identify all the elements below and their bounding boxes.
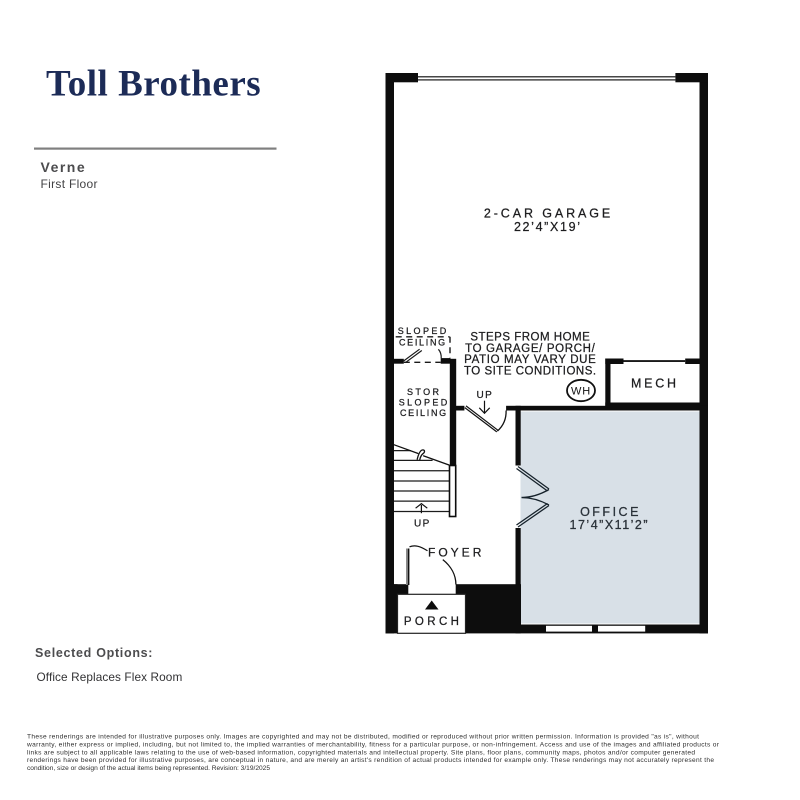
svg-text:SLOPED: SLOPED [398,326,449,336]
svg-text:WH: WH [571,386,591,398]
svg-text:STEPS FROM HOME: STEPS FROM HOME [470,332,590,344]
svg-text:links are subject to all appli: links are subject to all applicable laws… [27,749,695,756]
svg-text:UP: UP [477,390,494,401]
svg-text:Toll Brothers: Toll Brothers [46,64,261,105]
svg-text:TO SITE CONDITIONS.: TO SITE CONDITIONS. [464,365,597,377]
svg-text:condition, size or design of t: condition, size or design of the actual … [27,765,270,772]
svg-text:Verne: Verne [41,159,87,175]
svg-text:SLOPED: SLOPED [399,398,450,408]
svg-text:17’4”X11’2”: 17’4”X11’2” [570,518,650,532]
svg-text:CEILING: CEILING [399,338,447,348]
svg-text:These renderings are intended: These renderings are intended for illust… [27,734,699,741]
svg-text:Selected Options:: Selected Options: [35,646,153,660]
svg-text:warranty, either express or im: warranty, either express or implied, inc… [26,741,720,748]
svg-text:OFFICE: OFFICE [580,505,641,519]
svg-text:UP: UP [414,519,431,530]
svg-text:2-CAR GARAGE: 2-CAR GARAGE [484,207,613,221]
svg-text:First Floor: First Floor [41,177,98,191]
svg-text:PORCH: PORCH [404,616,463,628]
svg-text:STOR: STOR [407,387,441,397]
svg-text:22’4”X19’: 22’4”X19’ [514,220,582,234]
svg-text:Office Replaces Flex Room: Office Replaces Flex Room [37,670,183,684]
svg-text:CEILING: CEILING [400,408,448,418]
svg-text:renderings have been provided: renderings have been provided for illust… [27,757,714,764]
svg-text:PATIO MAY VARY DUE: PATIO MAY VARY DUE [464,354,596,366]
svg-text:FOYER: FOYER [428,546,484,560]
svg-text:MECH: MECH [631,377,679,391]
svg-text:TO GARAGE/ PORCH/: TO GARAGE/ PORCH/ [465,343,595,355]
